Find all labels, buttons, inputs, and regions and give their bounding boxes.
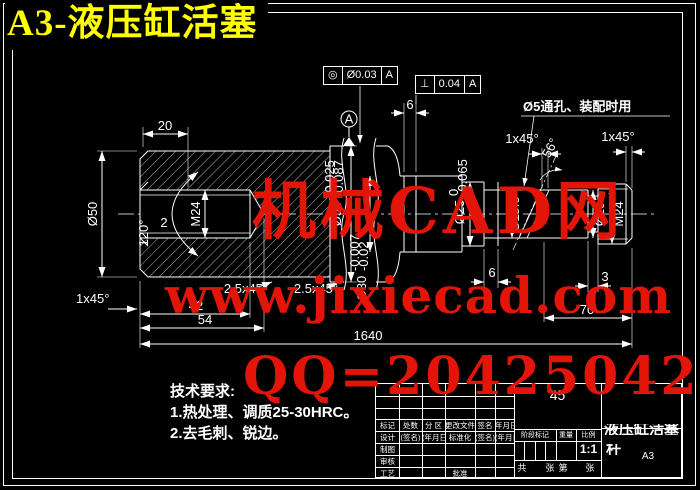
tb-check: 审核: [376, 456, 399, 467]
tb-r1-docno: 更改文件号: [445, 420, 475, 431]
perpendicularity-datum: A: [465, 75, 481, 94]
tb-r1-count: 处数: [399, 420, 422, 431]
tb-draft: 制图: [376, 444, 399, 455]
tb-r1-zone: 分 区: [422, 420, 445, 431]
sheet-size: A3: [638, 451, 658, 462]
svg-text:120°: 120°: [136, 220, 151, 247]
tb-r1-sign: 签名: [475, 420, 495, 431]
concentricity-value: Ø0.03: [343, 66, 382, 85]
hole-note-text: Ø5通孔、装配时用: [523, 99, 631, 114]
tb-sheet-no-label: 第: [557, 463, 569, 474]
chamfer-left-callout: 1x45°: [76, 291, 137, 309]
tb-design-sign: (签名): [399, 432, 422, 443]
tb-design-date: (年月日): [422, 432, 445, 443]
tb-process: 工艺: [376, 468, 399, 479]
fcf-perpendicularity: ⊥ 0.04 A: [415, 75, 481, 94]
svg-text:1640: 1640: [354, 328, 383, 343]
svg-text:20: 20: [158, 118, 172, 133]
tb-standardize: 标准化: [445, 432, 475, 443]
tb-std-sign: (签名): [475, 432, 495, 443]
svg-text:Ø50: Ø50: [85, 202, 100, 227]
cad-screenshot: A Ø5通孔、装配时用 56° 20 6: [0, 0, 700, 490]
concentricity-icon: ◎: [323, 66, 343, 85]
svg-text:M24: M24: [188, 201, 203, 226]
watermark-line-2: www.jixiecad.com: [165, 266, 672, 325]
part-name-line2: 杆: [606, 444, 626, 455]
part-name-line1: 液压缸活塞: [604, 424, 683, 435]
tb-sheet-zhang1: 张: [544, 463, 556, 474]
tb-r1-mark: 标记: [376, 420, 399, 431]
tb-sheet-total-label: 共: [516, 463, 528, 474]
svg-text:1x45°: 1x45°: [76, 291, 109, 306]
tb-design: 设计: [376, 432, 399, 443]
tb-r1-date: 年月日: [495, 420, 514, 431]
watermark-line-1: 机械CAD网: [252, 160, 624, 252]
tb-sheet-zhang2: 张: [584, 463, 596, 474]
dimension-2: 2: [160, 215, 167, 230]
tb-std-date: (年月日): [495, 432, 514, 443]
tb-stage-mark: 阶段标记: [514, 430, 556, 441]
svg-text:6: 6: [406, 97, 413, 112]
watermark-line-3: QQ=20425042: [243, 346, 700, 407]
tb-weight: 重量: [556, 430, 576, 441]
page-title: A3-液压缸活塞: [5, 0, 268, 50]
concentricity-datum: A: [382, 66, 398, 85]
tb-scale-value: 1:1: [576, 444, 601, 455]
tech-req-item-2: 2.去毛刺、锐边。: [170, 423, 358, 444]
tb-approve: 批准: [445, 468, 475, 479]
svg-text:1x45°: 1x45°: [601, 129, 634, 144]
perpendicularity-value: 0.04: [435, 75, 465, 94]
datum-a-letter: A: [345, 112, 354, 127]
fcf-concentricity: ◎ Ø0.03 A: [323, 66, 398, 85]
tb-scale-label: 比例: [576, 430, 601, 441]
perpendicularity-icon: ⊥: [415, 75, 435, 94]
svg-text:1x45°: 1x45°: [505, 131, 538, 146]
